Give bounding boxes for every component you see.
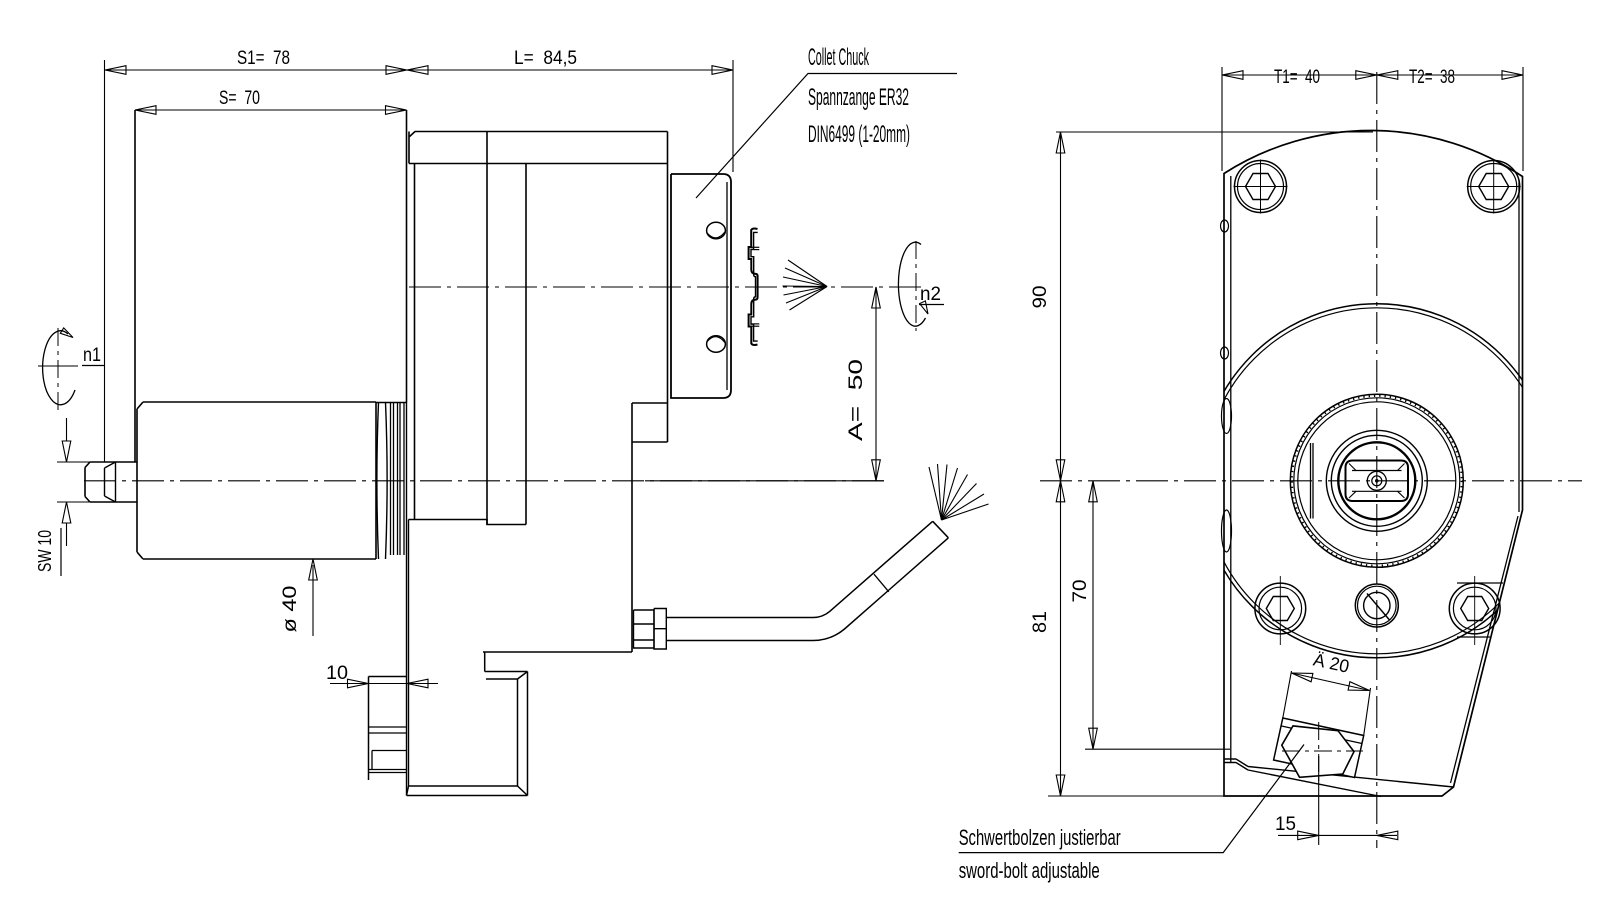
svg-text:Spannzange ER32: Spannzange ER32 [808, 84, 909, 111]
svg-text:15: 15 [1275, 814, 1296, 835]
svg-text:T1= 40: T1= 40 [1274, 67, 1320, 88]
svg-text:81: 81 [1030, 611, 1051, 633]
svg-text:70: 70 [1070, 580, 1091, 603]
svg-text:10: 10 [326, 663, 348, 684]
svg-text:S= 70: S= 70 [219, 88, 260, 109]
svg-text:90: 90 [1030, 286, 1051, 309]
svg-text:A= 50: A= 50 [846, 359, 867, 441]
svg-text:T2= 38: T2= 38 [1409, 67, 1455, 88]
svg-text:sword-bolt adjustable: sword-bolt adjustable [959, 858, 1100, 883]
svg-text:Collet Chuck: Collet Chuck [808, 44, 869, 71]
svg-text:DIN6499 (1-20mm): DIN6499 (1-20mm) [808, 121, 910, 148]
svg-text:S1= 78: S1= 78 [237, 48, 290, 69]
svg-text:ø 40: ø 40 [280, 586, 301, 633]
svg-text:L= 84,5: L= 84,5 [514, 48, 577, 69]
svg-text:Schwertbolzen justierbar: Schwertbolzen justierbar [959, 825, 1121, 850]
svg-text:n1: n1 [83, 345, 101, 366]
svg-text:n2: n2 [920, 284, 941, 305]
svg-text:SW 10: SW 10 [35, 530, 55, 572]
